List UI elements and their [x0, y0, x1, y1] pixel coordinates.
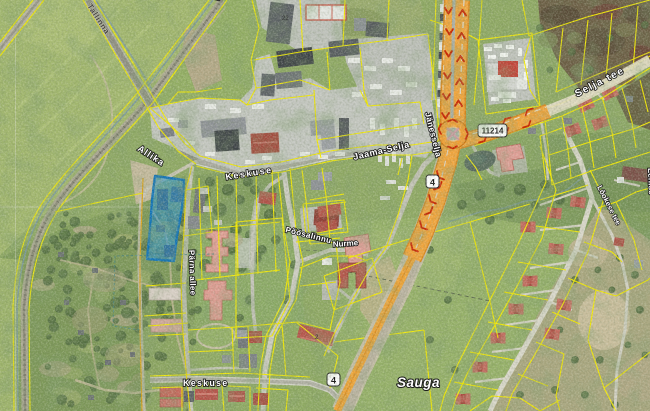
- svg-text:Keskuse: Keskuse: [183, 378, 228, 388]
- svg-text:Nurme: Nurme: [333, 238, 359, 249]
- svg-text:Sauga: Sauga: [397, 375, 440, 390]
- svg-text:22: 22: [282, 16, 289, 22]
- svg-text:Pärna allee: Pärna allee: [187, 250, 198, 296]
